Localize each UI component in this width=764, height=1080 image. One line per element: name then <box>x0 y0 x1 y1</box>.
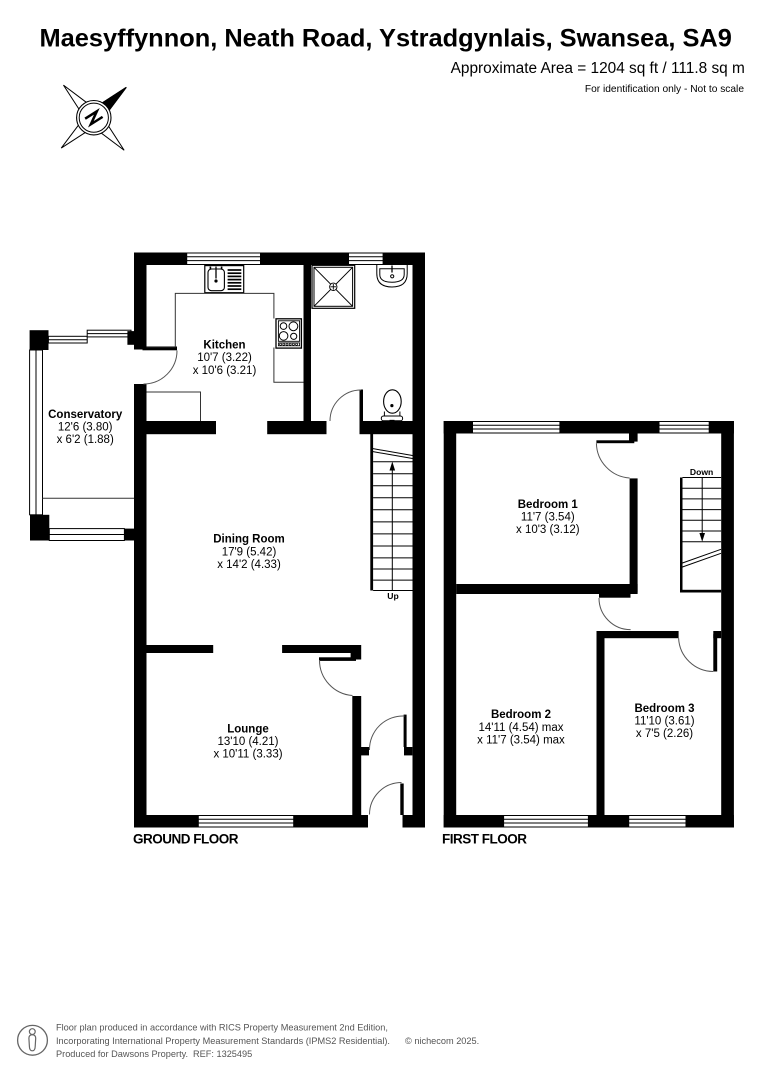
svg-text:x 14'2 (4.33): x 14'2 (4.33) <box>217 559 281 571</box>
svg-text:12'6 (3.80): 12'6 (3.80) <box>58 421 113 433</box>
svg-text:Up: Up <box>387 591 398 601</box>
svg-text:x 7'5 (2.26): x 7'5 (2.26) <box>636 728 693 740</box>
svg-text:Incorporating International Pr: Incorporating International Property Mea… <box>56 1036 390 1046</box>
svg-text:x 10'6 (3.21): x 10'6 (3.21) <box>193 365 257 377</box>
svg-text:Conservatory: Conservatory <box>48 409 123 421</box>
svg-text:Floor plan produced in accorda: Floor plan produced in accordance with R… <box>56 1023 388 1033</box>
svg-text:Produced for Dawsons Property.: Produced for Dawsons Property. <box>56 1049 188 1059</box>
svg-text:© nichecom 2025.: © nichecom 2025. <box>405 1036 479 1046</box>
svg-text:x 10'3 (3.12): x 10'3 (3.12) <box>516 524 580 536</box>
svg-text:x 11'7 (3.54) max: x 11'7 (3.54) max <box>477 734 565 746</box>
svg-text:Bedroom 3: Bedroom 3 <box>634 703 694 715</box>
svg-text:10'7 (3.22): 10'7 (3.22) <box>197 352 252 364</box>
svg-text:Lounge: Lounge <box>227 723 269 735</box>
svg-text:REF: 1325495: REF: 1325495 <box>193 1049 252 1059</box>
svg-text:Kitchen: Kitchen <box>203 340 245 352</box>
svg-text:Bedroom 2: Bedroom 2 <box>491 709 551 721</box>
svg-text:Bedroom 1: Bedroom 1 <box>518 499 579 511</box>
svg-text:17'9 (5.42): 17'9 (5.42) <box>222 546 277 558</box>
svg-text:Maesyffynnon, Neath Road, Ystr: Maesyffynnon, Neath Road, Ystradgynlais,… <box>40 24 732 52</box>
svg-text:11'7 (3.54): 11'7 (3.54) <box>521 511 575 523</box>
svg-text:For identification only - Not: For identification only - Not to scale <box>585 84 744 95</box>
svg-text:Dining Room: Dining Room <box>213 534 285 546</box>
svg-text:x 6'2 (1.88): x 6'2 (1.88) <box>57 434 114 446</box>
svg-text:13'10 (4.21): 13'10 (4.21) <box>217 736 278 748</box>
svg-text:FIRST FLOOR: FIRST FLOOR <box>442 832 527 847</box>
svg-text:GROUND FLOOR: GROUND FLOOR <box>133 832 239 847</box>
svg-text:14'11 (4.54) max: 14'11 (4.54) max <box>478 722 563 734</box>
svg-text:Down: Down <box>690 467 713 477</box>
svg-text:11'10 (3.61): 11'10 (3.61) <box>634 715 694 727</box>
svg-text:x 10'11 (3.33): x 10'11 (3.33) <box>213 749 282 761</box>
svg-text:Approximate Area = 1204 sq ft: Approximate Area = 1204 sq ft / 111.8 sq… <box>451 60 745 77</box>
